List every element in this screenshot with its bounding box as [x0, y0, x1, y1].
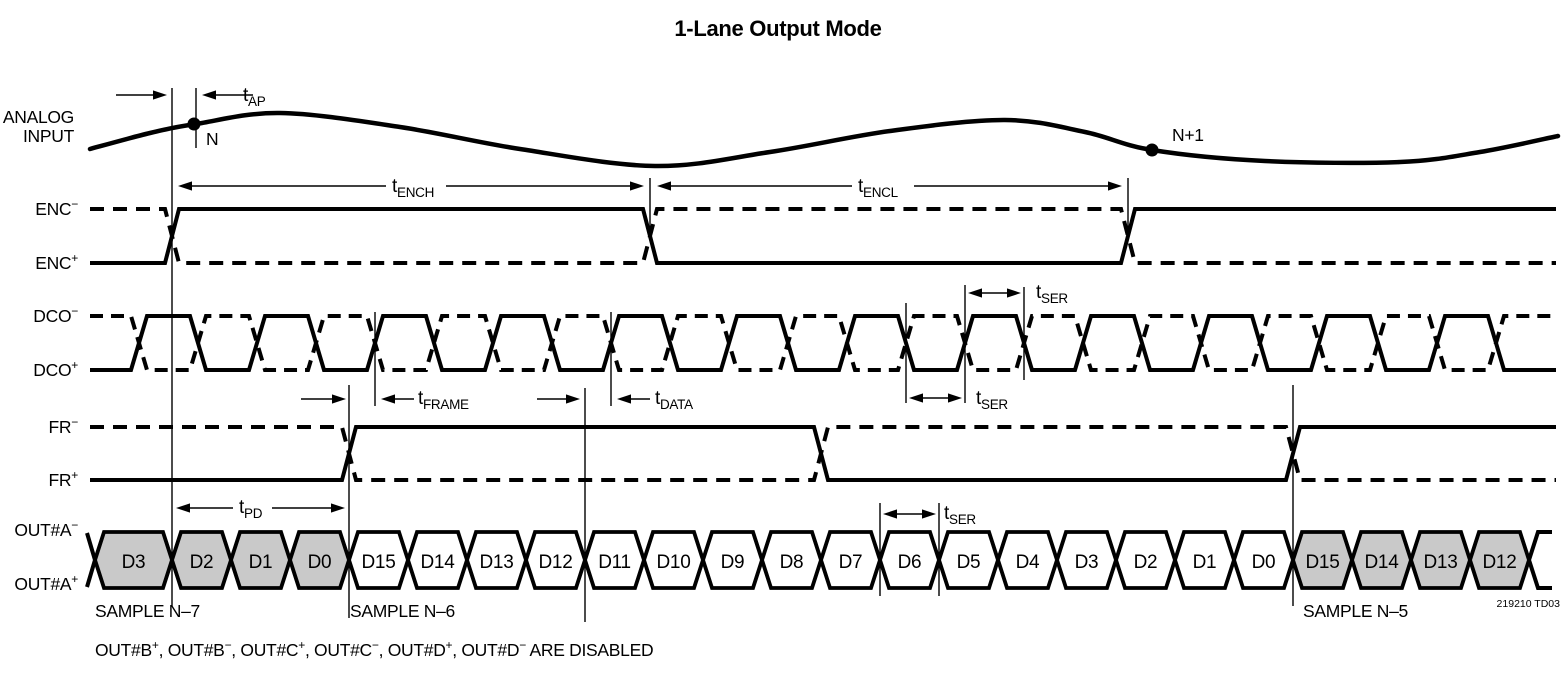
- bus-cell-label: D8: [780, 552, 804, 573]
- label-sample-n5: SAMPLE N–5: [1303, 601, 1408, 621]
- tdata-ref-arrow-head: [566, 394, 580, 403]
- enc-plus-waveform: [90, 209, 1556, 263]
- label-tench: tENCH: [392, 176, 434, 200]
- tframe-arrow-head: [381, 394, 395, 403]
- label-tframe: tFRAME: [418, 388, 469, 412]
- label-tpd: tPD: [239, 497, 263, 521]
- label-analog-line1: ANALOG: [3, 107, 74, 127]
- output-a-bus: D3D2D1D0D15D14D13D12D11D10D9D8D7D6D5D4D3…: [95, 532, 1529, 588]
- bus-cell-label: D0: [308, 552, 332, 573]
- sample-dot-n-plus-1: [1146, 144, 1159, 157]
- bus-cell-label: D1: [249, 552, 273, 573]
- bus-cell-label: D14: [1365, 552, 1400, 573]
- tser-mid-arrow-head: [948, 393, 962, 402]
- label-fr-plus: FR+: [49, 468, 79, 490]
- bus-cell-label: D4: [1016, 552, 1040, 573]
- label-tser-mid: tSER: [976, 388, 1008, 412]
- diagram-title: 1-Lane Output Mode: [674, 16, 881, 41]
- tench-arrow-left: [178, 181, 386, 190]
- tpd-arrow-right: [272, 503, 345, 512]
- label-tap: tAP: [243, 85, 266, 109]
- label-outa-plus: OUT#A+: [14, 572, 78, 594]
- label-tdata: tDATA: [655, 388, 693, 412]
- tser-top-arrow: [968, 288, 1021, 297]
- tpd-arrow-left: [176, 503, 233, 512]
- label-tencl: tENCL: [858, 176, 899, 200]
- tframe-arrow: [381, 394, 414, 403]
- bus-cell-label: D0: [1252, 552, 1276, 573]
- tpd-arrow-left-head: [176, 503, 190, 512]
- label-tser-top: tSER: [1036, 282, 1068, 306]
- enc-minus-waveform: [90, 209, 1556, 263]
- tench-arrow-right-head: [630, 181, 644, 190]
- bus-cell-label: D11: [598, 552, 631, 573]
- label-analog-line2: INPUT: [23, 126, 75, 146]
- label-tser-bus: tSER: [944, 503, 976, 527]
- bus-cell-label: D5: [957, 552, 981, 573]
- bus-cell-label: D15: [1306, 552, 1340, 573]
- timing-diagram-page: D3D2D1D0D15D14D13D12D11D10D9D8D7D6D5D4D3…: [0, 0, 1563, 676]
- tdata-ref-arrow: [537, 394, 580, 403]
- label-fr-minus: FR−: [49, 415, 79, 437]
- fr-plus-waveform: [90, 427, 1556, 480]
- analog-input-waveform: [90, 113, 1558, 166]
- tap-arrow-out-head: [202, 90, 216, 99]
- tser-bus-arrow-head: [883, 509, 897, 518]
- label-dco-plus: DCO+: [33, 358, 78, 380]
- tser-mid-arrow: [909, 393, 962, 402]
- sample-dot-n: [188, 118, 201, 131]
- bus-cell-label: D2: [1134, 552, 1158, 573]
- bus-cell-label: D13: [480, 552, 514, 573]
- tframe-ref-arrow-head: [332, 394, 346, 403]
- tframe-ref-arrow: [301, 394, 346, 403]
- label-enc-minus: ENC−: [35, 197, 78, 219]
- timing-diagram: D3D2D1D0D15D14D13D12D11D10D9D8D7D6D5D4D3…: [0, 0, 1563, 676]
- tser-top-arrow-head: [1007, 288, 1021, 297]
- bus-cell-label: D14: [421, 552, 456, 573]
- tencl-arrow-left: [657, 181, 852, 190]
- label-dco-minus: DCO−: [33, 304, 78, 326]
- label-enc-plus: ENC+: [35, 251, 78, 273]
- bus-cell-label: D2: [190, 552, 214, 573]
- tench-arrow-left-head: [178, 181, 192, 190]
- bus-cell-label: D3: [122, 552, 146, 573]
- tap-arrow-in: [116, 90, 167, 99]
- part-number-note: 219210 TD03: [1497, 598, 1561, 610]
- tench-arrow-right: [446, 181, 644, 190]
- waveforms: D3D2D1D0D15D14D13D12D11D10D9D8D7D6D5D4D3…: [87, 113, 1558, 588]
- tencl-arrow-right-head: [1108, 181, 1122, 190]
- bus-cell-label: D10: [657, 552, 691, 573]
- bus-cell-label: D13: [1424, 552, 1458, 573]
- tap-arrow-in-head: [153, 90, 167, 99]
- tdata-arrow: [617, 394, 650, 403]
- tser-mid-arrow-head: [909, 393, 923, 402]
- bus-cell-label: D12: [539, 552, 573, 573]
- tpd-arrow-right-head: [331, 503, 345, 512]
- label-sample-n6: SAMPLE N–6: [350, 601, 455, 621]
- tser-bus-arrow-head: [922, 509, 936, 518]
- tencl-arrow-right: [914, 181, 1122, 190]
- label-outa-minus: OUT#A−: [14, 518, 78, 540]
- bus-cell-label: D12: [1483, 552, 1517, 573]
- label-sample-n: N: [206, 129, 218, 149]
- dimension-arrows: [116, 90, 1122, 518]
- tdata-arrow-head: [617, 394, 631, 403]
- label-sample-n7: SAMPLE N–7: [95, 601, 200, 621]
- bus-cell-label: D7: [839, 552, 863, 573]
- bus-cell-label: D15: [362, 552, 396, 573]
- label-sample-n-plus-1: N+1: [1172, 125, 1204, 145]
- bus-cell-label: D1: [1193, 552, 1217, 573]
- tencl-arrow-left-head: [657, 181, 671, 190]
- bus-cell-label: D9: [721, 552, 745, 573]
- bus-cell-label: D6: [898, 552, 922, 573]
- tser-top-arrow-head: [968, 288, 982, 297]
- tser-bus-arrow: [883, 509, 936, 518]
- bus-cell-label: D3: [1075, 552, 1099, 573]
- footer-disabled-note: OUT#B+, OUT#B−, OUT#C+, OUT#C−, OUT#D+, …: [95, 638, 653, 660]
